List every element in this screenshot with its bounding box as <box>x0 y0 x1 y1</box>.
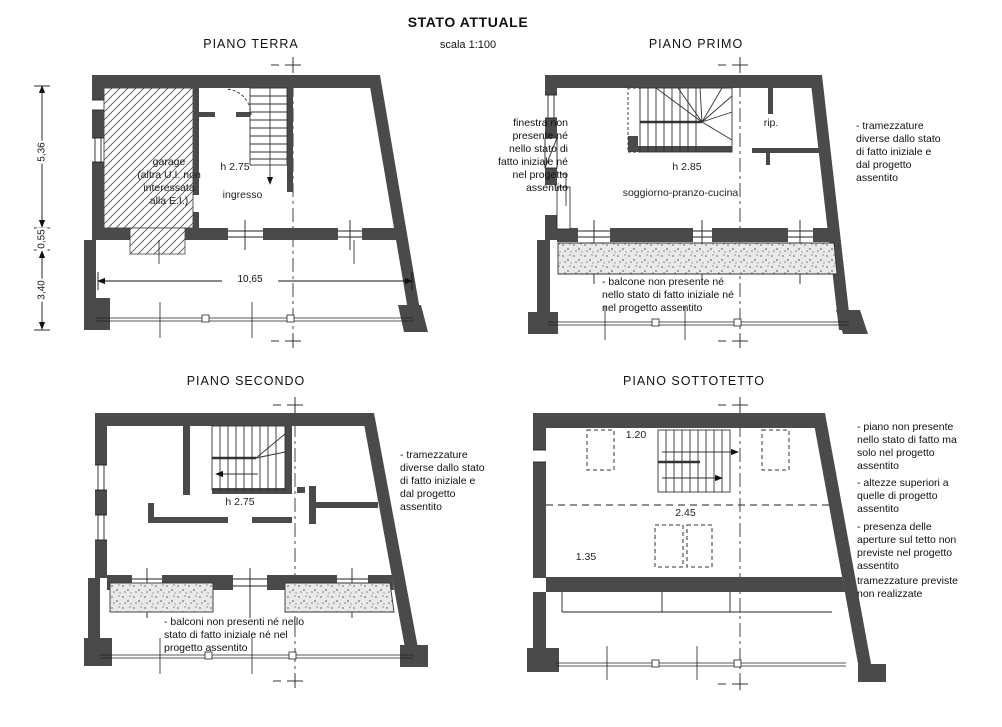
plan-title-primo: PIANO PRIMO <box>576 37 816 51</box>
sottotetto-heights-note: - altezze superiori a quelle di progetto… <box>857 477 979 516</box>
secondo-partitions-note: - tramezzature diverse dallo stato di fa… <box>400 449 515 514</box>
floor-plan-drawing <box>0 0 1002 727</box>
terra-width-dimension: 10,65 <box>222 274 278 285</box>
terra-left-dimension-mid: 0,55 <box>37 227 48 250</box>
sheet-title: STATO ATTUALE <box>333 14 603 30</box>
plan-title-sottotetto: PIANO SOTTOTETTO <box>574 374 814 388</box>
primo-stairs <box>628 88 732 152</box>
primo-room-label: soggiorno-pranzo-cucina <box>598 187 763 200</box>
primo-window-note: finestra non presente né nello stato di … <box>476 117 568 195</box>
scale-label: scala 1:100 <box>383 39 553 51</box>
sottotetto-height-2: 2.45 <box>663 507 708 520</box>
primo-balcony-note: - balcone non presente né nello stato di… <box>602 276 837 315</box>
terra-lower-boundary <box>96 240 413 338</box>
plan-terra-linework <box>34 57 428 348</box>
sottotetto-stairs <box>658 430 738 492</box>
secondo-balconies-note: - balconi non presenti né nello stato di… <box>164 616 399 655</box>
sottotetto-roof-openings <box>587 430 789 567</box>
secondo-balcony-hatch <box>110 583 394 612</box>
terra-left-dimension-bottom: 3,40 <box>37 278 48 301</box>
secondo-stairs <box>212 426 285 490</box>
plan-title-terra: PIANO TERRA <box>131 37 371 51</box>
sottotetto-centerline <box>718 397 748 690</box>
secondo-height-label: h 2.75 <box>210 496 270 509</box>
sottotetto-height-1: 1.20 <box>615 429 657 442</box>
terra-height-label: h 2.75 <box>205 161 265 174</box>
sottotetto-walls <box>527 413 886 682</box>
sottotetto-height-3: 1.35 <box>565 551 607 564</box>
plan-title-secondo: PIANO SECONDO <box>126 374 366 388</box>
plan-sottotetto-linework <box>527 397 886 690</box>
primo-balcony-hatch <box>558 243 837 274</box>
primo-partitions-note: - tramezzature diverse dallo stato di fa… <box>856 120 971 185</box>
terra-left-dimension-top: 5,36 <box>37 140 48 163</box>
sottotetto-openings-note: - presenza delle aperture sul tetto non … <box>857 521 979 573</box>
sottotetto-partitions-note: tramezzature previste non realizzate <box>857 575 979 601</box>
primo-height-label: h 2.85 <box>657 161 717 174</box>
primo-storage-label: rip. <box>751 117 791 130</box>
sottotetto-floor-note: - piano non presente nello stato di fatt… <box>857 421 979 473</box>
terra-room-label: ingresso <box>205 189 280 202</box>
architectural-drawing-sheet: STATO ATTUALE scala 1:100 PIANO TERRA PI… <box>0 0 1002 727</box>
sottotetto-lower-boundary <box>556 646 846 680</box>
